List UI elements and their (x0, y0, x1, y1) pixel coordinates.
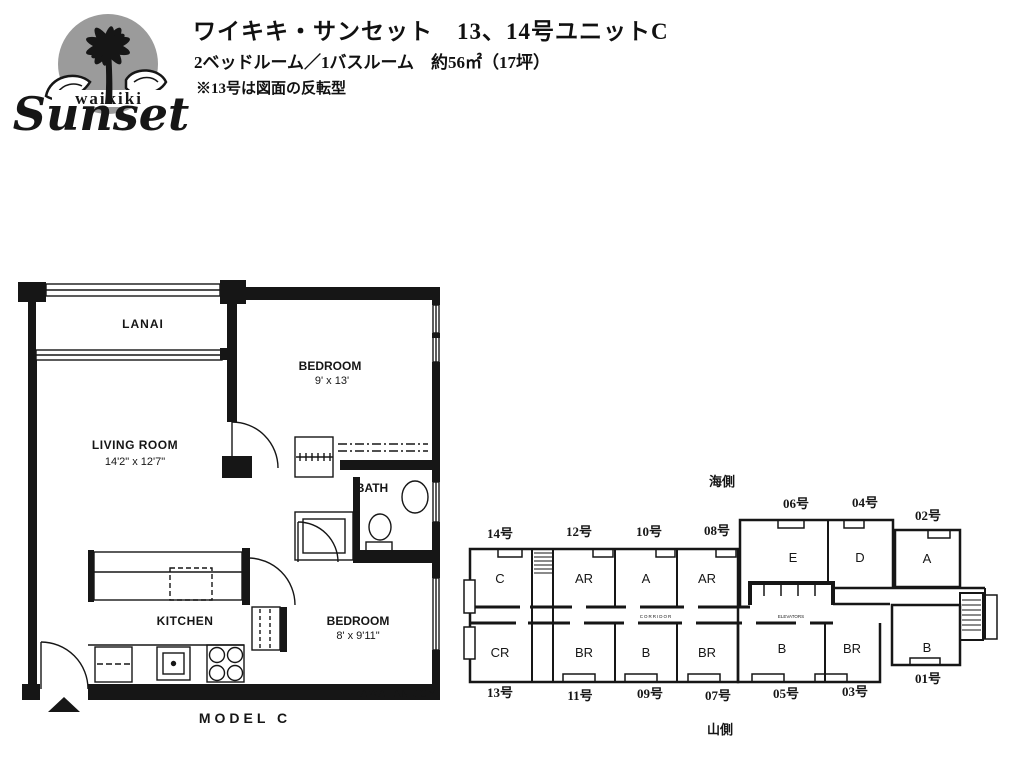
unit-type-12: AR (575, 571, 593, 586)
unit-type-11: BR (575, 645, 593, 660)
unit-no-01: 01号 (915, 671, 941, 686)
logo-sunset-text: Sunset (13, 87, 190, 136)
sea-side-label: 海側 (709, 474, 735, 489)
unit-no-03: 03号 (842, 684, 868, 699)
bath-label: BATH (356, 481, 388, 495)
unit-type-06: E (789, 550, 798, 565)
corridor-label: CORRIDOR (640, 614, 673, 619)
unit-no-07: 07号 (705, 688, 731, 703)
building-floor-plate: 海側 山側 CORRIDOR ELEVATORS 14号 12号 10号 08号… (460, 462, 1024, 752)
model-c-caption: MODEL C (199, 710, 291, 726)
waikiki-sunset-logo: waikiki Sunset (8, 4, 194, 136)
mountain-side-label: 山側 (707, 722, 733, 737)
hawaiian-joy-watermark: HAWAIIAN JOY (352, 688, 436, 700)
bedroom1-label: BEDROOM (299, 359, 362, 373)
unit-type-14: C (495, 571, 504, 586)
unit-no-10: 10号 (636, 524, 662, 539)
bedroom2-dims: 8' x 9'11" (336, 630, 379, 642)
unit-type-02: A (923, 551, 932, 566)
unit-no-08: 08号 (704, 523, 730, 538)
entry-arrow-icon (48, 697, 80, 712)
bedroom1-dims: 9' x 13' (315, 375, 349, 387)
page-title: ワイキキ・サンセット 13、14号ユニットC (193, 12, 669, 46)
unit-no-14: 14号 (487, 526, 513, 541)
living-room-label: LIVING ROOM (92, 438, 178, 452)
unit-no-04: 04号 (852, 495, 878, 510)
flyer-page: waikiki Sunset ワイキキ・サンセット 13、14号ユニットC 2ベ… (0, 0, 1024, 759)
unit-type-10: A (642, 571, 651, 586)
lanai-label: LANAI (122, 317, 164, 331)
unit-no-05: 05号 (773, 686, 799, 701)
unit-type-08: AR (698, 571, 716, 586)
unit-type-07: BR (698, 645, 716, 660)
unit-type-09: B (642, 645, 651, 660)
living-room-dims: 14'2" x 12'7" (105, 456, 165, 468)
page-note: ※13号は図面の反転型 (196, 77, 346, 98)
unit-floor-plan: LANAI BEDROOM 9' x 13' LIVING ROOM 14'2"… (8, 270, 448, 732)
unit-type-13: CR (491, 645, 510, 660)
unit-type-04: D (855, 550, 864, 565)
unit-no-09: 09号 (637, 686, 663, 701)
bedroom2-label: BEDROOM (327, 614, 390, 628)
unit-no-11: 11号 (567, 688, 592, 703)
room-labels: LANAI BEDROOM 9' x 13' LIVING ROOM 14'2"… (92, 317, 436, 726)
walls-layer (18, 280, 440, 712)
elevators-label: ELEVATORS (778, 614, 804, 619)
unit-type-03: BR (843, 641, 861, 656)
kitchen-label: KITCHEN (157, 614, 214, 628)
unit-no-06: 06号 (783, 496, 809, 511)
unit-no-12: 12号 (566, 524, 592, 539)
stairs-icon (534, 553, 981, 630)
unit-type-01: B (923, 640, 932, 655)
unit-type-05: B (778, 641, 787, 656)
unit-no-13: 13号 (487, 685, 513, 700)
unit-no-02: 02号 (915, 508, 941, 523)
page-subtitle: 2ベッドルーム／1バスルーム 約56㎡（17坪） (194, 48, 550, 73)
plate-walls (464, 520, 997, 682)
